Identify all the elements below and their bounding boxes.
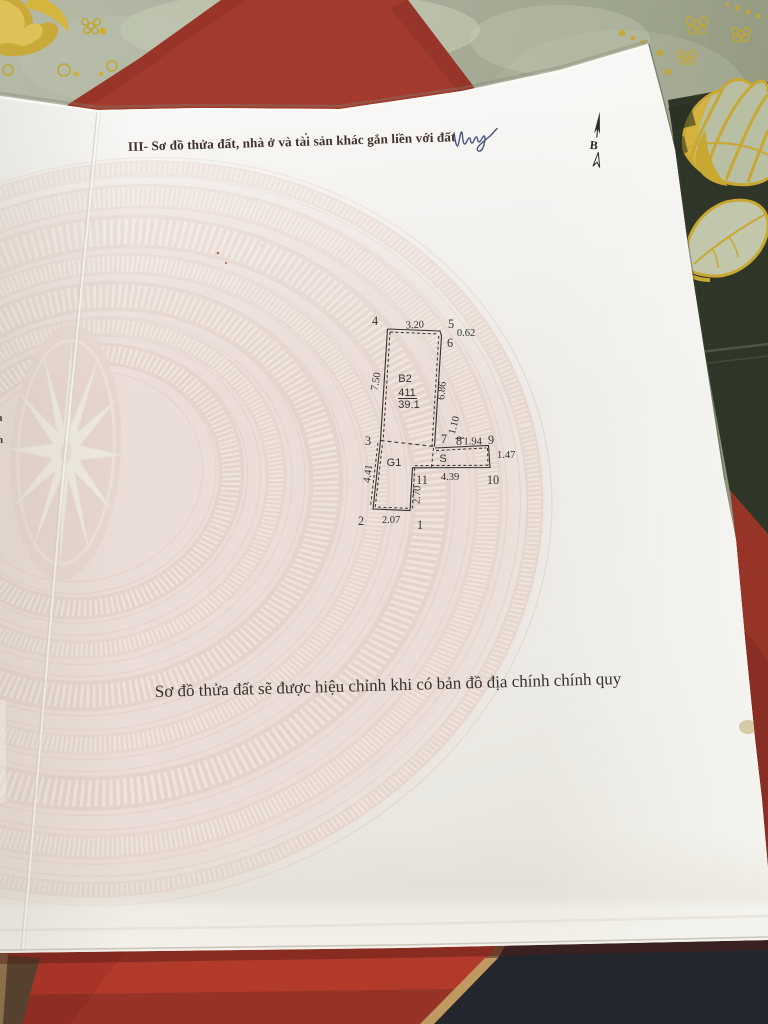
svg-text:4.41: 4.41	[362, 464, 375, 484]
svg-text:39.1: 39.1	[398, 399, 419, 411]
svg-text:4.39: 4.39	[441, 472, 459, 483]
svg-text:3.20: 3.20	[405, 320, 424, 332]
svg-text:6.86: 6.86	[436, 381, 449, 400]
svg-text:G1: G1	[387, 457, 402, 469]
svg-text:B2: B2	[398, 373, 411, 385]
svg-text:10: 10	[487, 473, 499, 487]
svg-text:S: S	[439, 453, 446, 465]
svg-text:1.47: 1.47	[497, 450, 515, 461]
svg-text:2.07: 2.07	[382, 515, 400, 526]
svg-text:11: 11	[416, 473, 428, 487]
svg-text:5: 5	[448, 317, 454, 331]
svg-text:h: h	[0, 434, 3, 446]
svg-text:4: 4	[372, 314, 378, 328]
svg-text:1: 1	[417, 518, 423, 532]
svg-text:411: 411	[398, 387, 416, 399]
svg-text:0.62: 0.62	[457, 328, 475, 339]
svg-text:9: 9	[488, 433, 494, 447]
svg-text:1.94: 1.94	[464, 437, 483, 448]
svg-text:6: 6	[447, 336, 453, 350]
svg-text:3: 3	[365, 434, 371, 448]
svg-text:2.70: 2.70	[412, 485, 424, 504]
svg-text:2: 2	[358, 514, 364, 528]
svg-text:B: B	[589, 138, 599, 153]
svg-text:7: 7	[441, 432, 447, 446]
